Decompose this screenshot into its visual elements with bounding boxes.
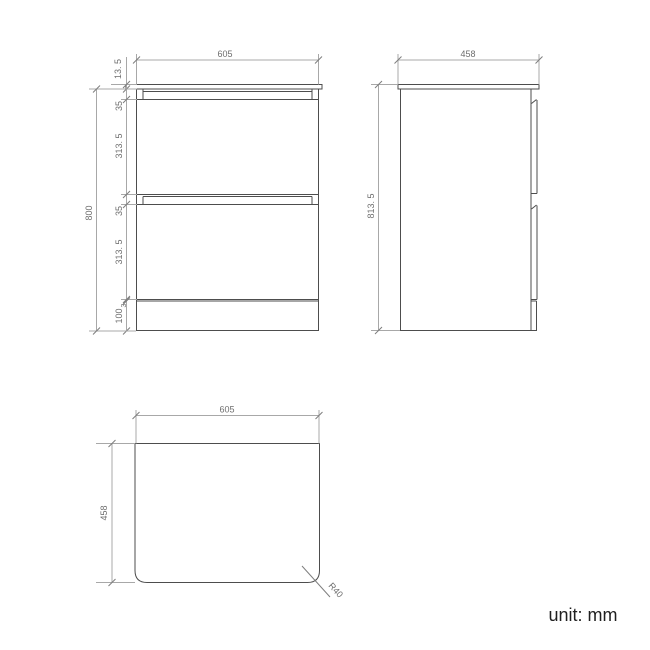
front-countertop xyxy=(126,85,322,90)
side-countertop xyxy=(398,85,539,90)
side-body-outline xyxy=(401,89,532,331)
front-plinth-height-label: 100 xyxy=(114,308,124,323)
top-view-outline xyxy=(135,444,320,583)
front-top-recess-label: 35 xyxy=(114,101,124,111)
front-drawer1-height-label: 313. 5 xyxy=(114,133,124,158)
front-gap-label: 3 xyxy=(121,303,128,307)
front-view: 605 13. 5 35 313. 5 35 313. 5 3 100 800 xyxy=(84,49,322,335)
front-countertop-thickness-label: 13. 5 xyxy=(113,59,123,79)
side-drawer2-chamfer xyxy=(532,205,537,209)
top-depth-label: 458 xyxy=(99,505,109,520)
side-total-height-label: 813. 5 xyxy=(366,193,376,218)
side-view: 458 813. 5 xyxy=(366,49,543,334)
drawing-svg: 605 13. 5 35 313. 5 35 313. 5 3 100 800 xyxy=(0,0,650,650)
side-depth-label: 458 xyxy=(460,49,475,59)
front-width-label: 605 xyxy=(217,49,232,59)
front-body-outline xyxy=(137,89,319,331)
front-body-height-label: 800 xyxy=(84,205,94,220)
unit-note: unit: mm xyxy=(528,605,638,626)
top-radius-leader-line xyxy=(302,566,330,597)
top-view: 605 458 R40 xyxy=(96,405,345,600)
front-mid-recess-label: 35 xyxy=(114,206,124,216)
technical-drawing-page: 605 13. 5 35 313. 5 35 313. 5 3 100 800 xyxy=(0,0,650,650)
front-drawer2-height-label: 313. 5 xyxy=(114,239,124,264)
side-drawer1-chamfer xyxy=(532,100,537,104)
top-width-label: 605 xyxy=(219,405,234,415)
